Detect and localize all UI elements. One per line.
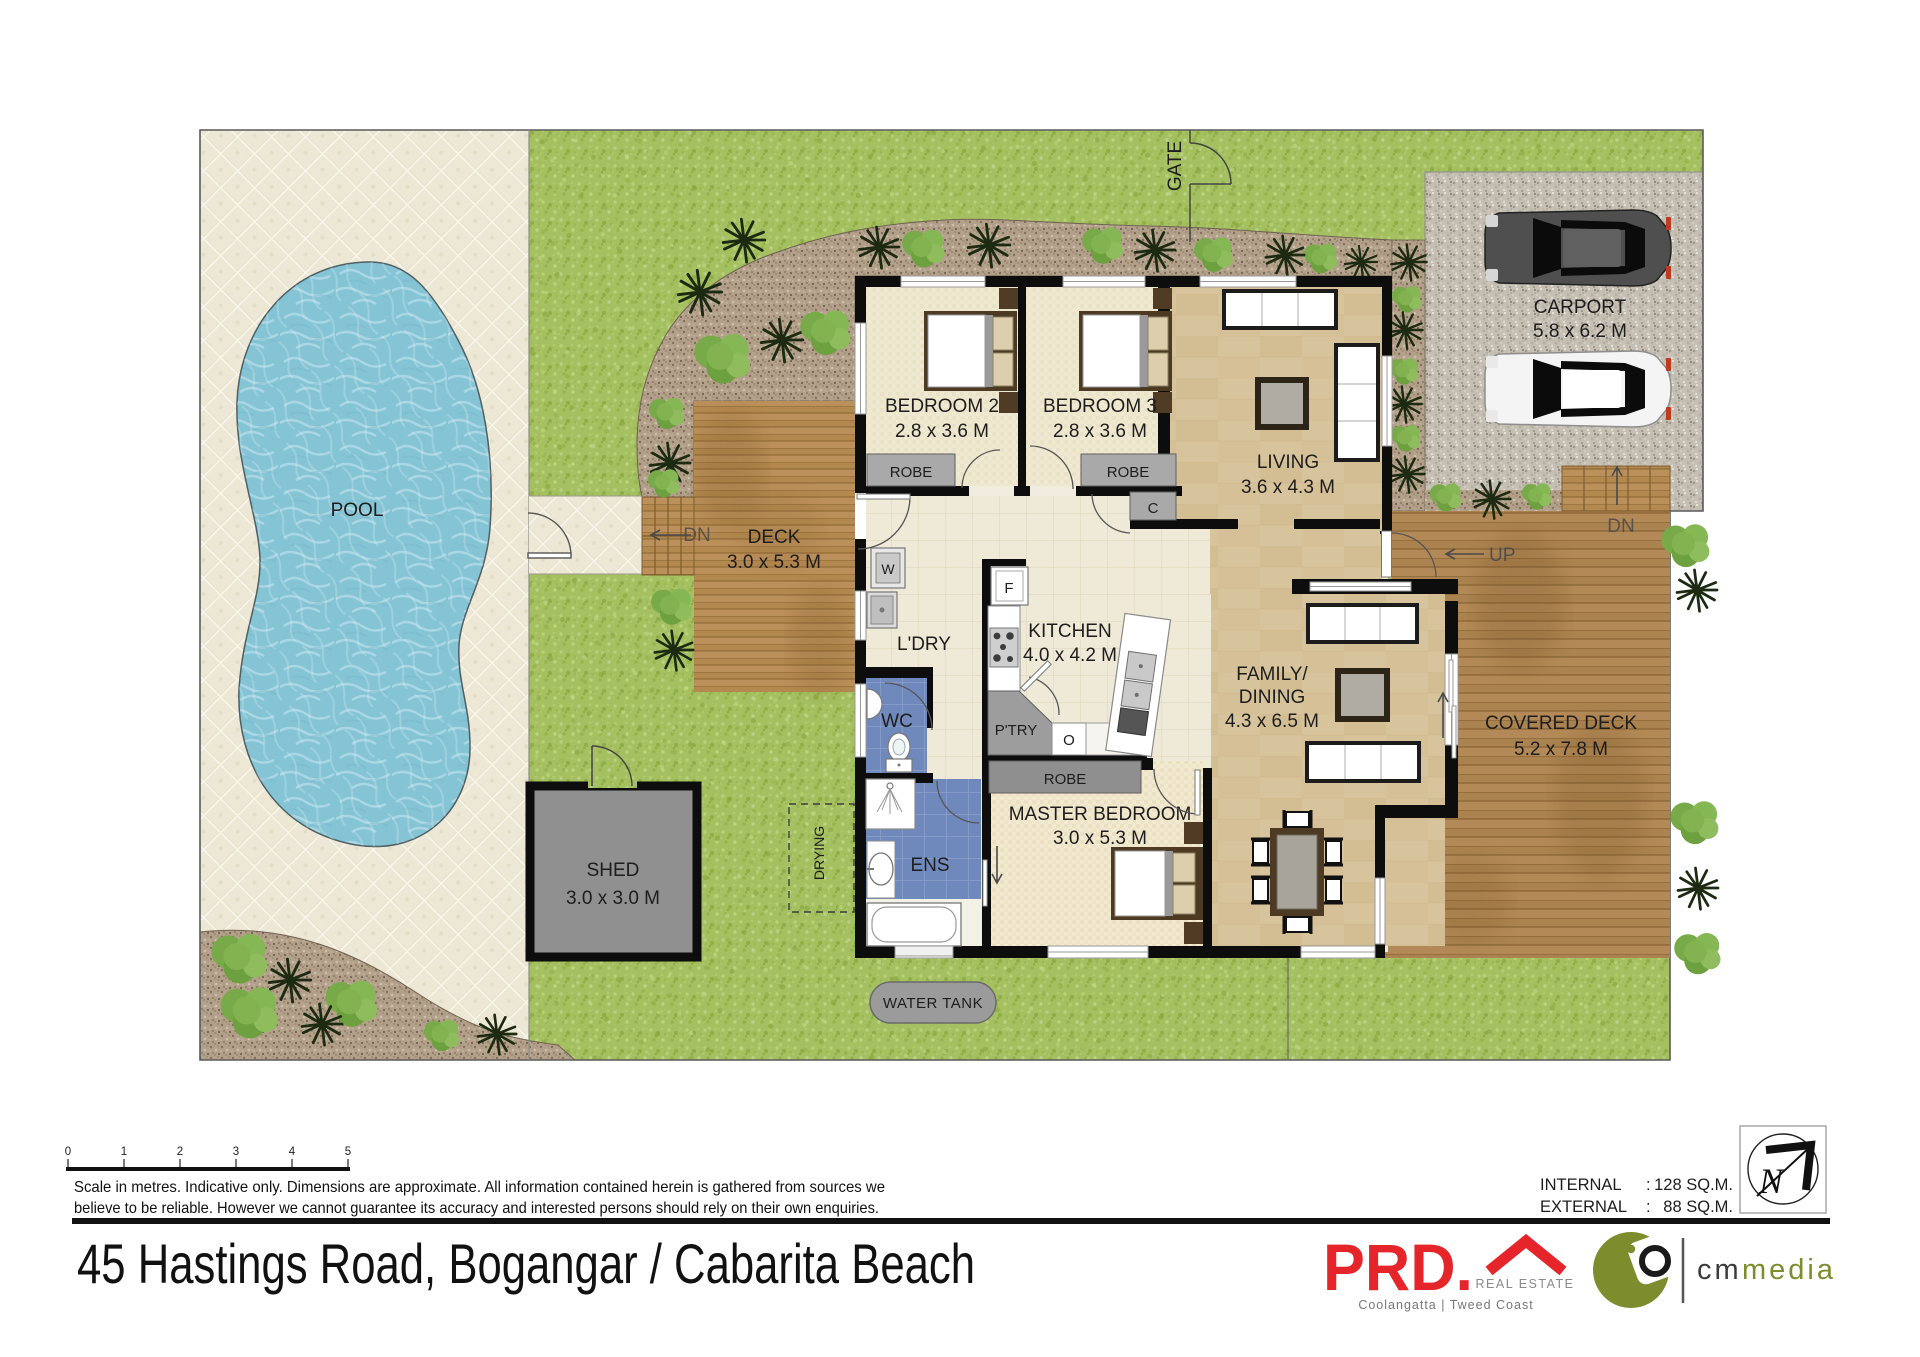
- svg-text:COVERED DECK: COVERED DECK: [1485, 713, 1637, 734]
- svg-text:REAL ESTATE: REAL ESTATE: [1476, 1277, 1575, 1291]
- svg-text::: :: [1646, 1198, 1651, 1216]
- svg-text:media: media: [1742, 1254, 1836, 1286]
- svg-text:0: 0: [65, 1146, 71, 1158]
- svg-text:WC: WC: [881, 711, 913, 732]
- svg-text:Scale in metres. Indicative o: Scale in metres. Indicative only. Dimens…: [74, 1179, 885, 1196]
- svg-text:45 Hastings Road, Bogangar / C: 45 Hastings Road, Bogangar / Cabarita Be…: [77, 1232, 975, 1295]
- svg-text:2: 2: [177, 1146, 183, 1158]
- svg-text:DINING: DINING: [1239, 687, 1306, 708]
- svg-text:O: O: [1063, 732, 1075, 749]
- svg-text:3.0 x 5.3 M: 3.0 x 5.3 M: [727, 552, 821, 573]
- svg-text:N: N: [1758, 1161, 1785, 1201]
- svg-text:CARPORT: CARPORT: [1534, 297, 1627, 318]
- svg-text:ROBE: ROBE: [1107, 464, 1150, 481]
- svg-text:2.8 x 3.6 M: 2.8 x 3.6 M: [1053, 421, 1147, 442]
- svg-text:ROBE: ROBE: [890, 464, 933, 481]
- svg-text:cm: cm: [1697, 1254, 1742, 1286]
- svg-text:4.3 x 6.5 M: 4.3 x 6.5 M: [1225, 711, 1319, 732]
- svg-text:Coolangatta | Tweed Coast: Coolangatta | Tweed Coast: [1358, 1298, 1533, 1312]
- svg-text:5.8 x 6.2 M: 5.8 x 6.2 M: [1533, 321, 1627, 342]
- svg-text:POOL: POOL: [331, 500, 384, 521]
- svg-text:UP: UP: [1489, 545, 1515, 566]
- svg-text:L'DRY: L'DRY: [897, 634, 951, 655]
- svg-text:INTERNAL: INTERNAL: [1540, 1176, 1622, 1194]
- svg-text:WATER TANK: WATER TANK: [883, 995, 983, 1012]
- svg-text:DN: DN: [683, 525, 710, 546]
- svg-text:3.6 x 4.3 M: 3.6 x 4.3 M: [1241, 477, 1335, 498]
- svg-text:believe to be reliable. Howev: believe to be reliable. However we canno…: [74, 1200, 879, 1217]
- svg-text:SHED: SHED: [587, 860, 640, 881]
- svg-text::: :: [1646, 1176, 1651, 1194]
- svg-text:BEDROOM 3: BEDROOM 3: [1043, 396, 1157, 417]
- svg-text:88 SQ.M.: 88 SQ.M.: [1663, 1198, 1733, 1216]
- svg-text:PRD.: PRD.: [1323, 1230, 1473, 1304]
- svg-text:EXTERNAL: EXTERNAL: [1540, 1198, 1627, 1216]
- svg-text:ENS: ENS: [910, 855, 949, 876]
- svg-text:4.0 x 4.2 M: 4.0 x 4.2 M: [1023, 645, 1117, 666]
- svg-text:MASTER BEDROOM: MASTER BEDROOM: [1009, 804, 1192, 825]
- svg-text:DECK: DECK: [748, 527, 801, 548]
- svg-text:BEDROOM 2: BEDROOM 2: [885, 396, 999, 417]
- svg-text:P'TRY: P'TRY: [995, 722, 1038, 739]
- svg-text:3: 3: [233, 1146, 239, 1158]
- svg-text:ROBE: ROBE: [1044, 771, 1087, 788]
- svg-text:DN: DN: [1607, 516, 1634, 537]
- svg-text:5: 5: [345, 1146, 351, 1158]
- svg-text:DRYING: DRYING: [811, 826, 827, 880]
- svg-text:128 SQ.M.: 128 SQ.M.: [1654, 1176, 1733, 1194]
- svg-text:3.0 x 5.3 M: 3.0 x 5.3 M: [1053, 828, 1147, 849]
- svg-text:LIVING: LIVING: [1257, 452, 1319, 473]
- svg-text:3.0 x 3.0 M: 3.0 x 3.0 M: [566, 888, 660, 909]
- svg-text:1: 1: [121, 1146, 127, 1158]
- svg-text:KITCHEN: KITCHEN: [1028, 621, 1111, 642]
- svg-text:F: F: [1004, 580, 1013, 597]
- svg-text:4: 4: [289, 1146, 296, 1158]
- svg-text:GATE: GATE: [1165, 141, 1186, 191]
- svg-text:W: W: [881, 561, 895, 577]
- svg-text:5.2 x 7.8 M: 5.2 x 7.8 M: [1514, 739, 1608, 760]
- svg-text:C: C: [1148, 500, 1159, 517]
- svg-text:2.8 x 3.6 M: 2.8 x 3.6 M: [895, 421, 989, 442]
- svg-text:FAMILY/: FAMILY/: [1236, 664, 1308, 685]
